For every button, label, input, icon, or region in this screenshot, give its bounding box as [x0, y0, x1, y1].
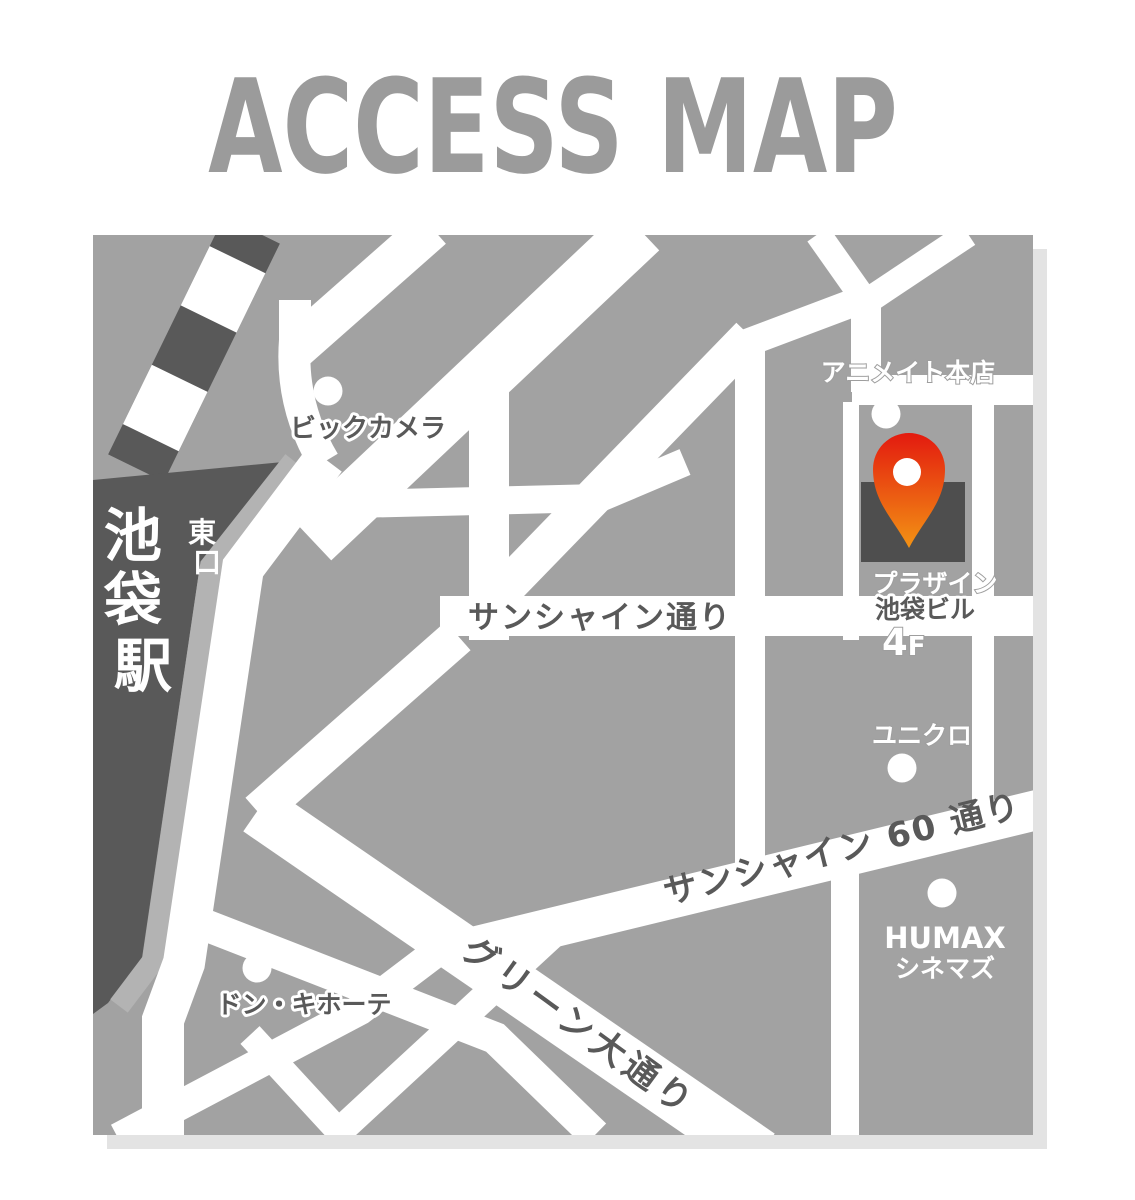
- station-exit-label: 東 口: [188, 516, 226, 579]
- don-quijote-label: ドン・キホーテ: [216, 990, 391, 1019]
- humax-label-line1: HUMAX: [884, 921, 1005, 955]
- uniqlo-label: ユニクロ: [872, 721, 972, 750]
- access-map-canvas: ACCESS MAP: [0, 0, 1135, 1200]
- destination-label-line1: プラザイン: [872, 569, 997, 598]
- station-name: 池 袋 駅: [103, 502, 182, 700]
- humax-label-line2: シネマズ: [895, 954, 995, 983]
- animate-label: アニメイト本店: [821, 358, 996, 387]
- page-title: ACCESS MAP: [208, 51, 898, 202]
- destination-label-line2: 池袋ビル: [875, 595, 975, 624]
- humax-dot: [928, 879, 957, 908]
- pin-center-circle: [893, 458, 921, 486]
- bic-camera-dot: [314, 377, 343, 406]
- animate-dot: [872, 400, 901, 429]
- don-quijote-dot: [243, 954, 272, 983]
- bic-camera-label: ビックカメラ: [290, 414, 446, 444]
- uniqlo-dot: [888, 754, 917, 783]
- sunshine-dori-label: サンシャイン通り: [468, 600, 732, 636]
- access-map-page: ACCESS MAP: [0, 0, 1135, 1200]
